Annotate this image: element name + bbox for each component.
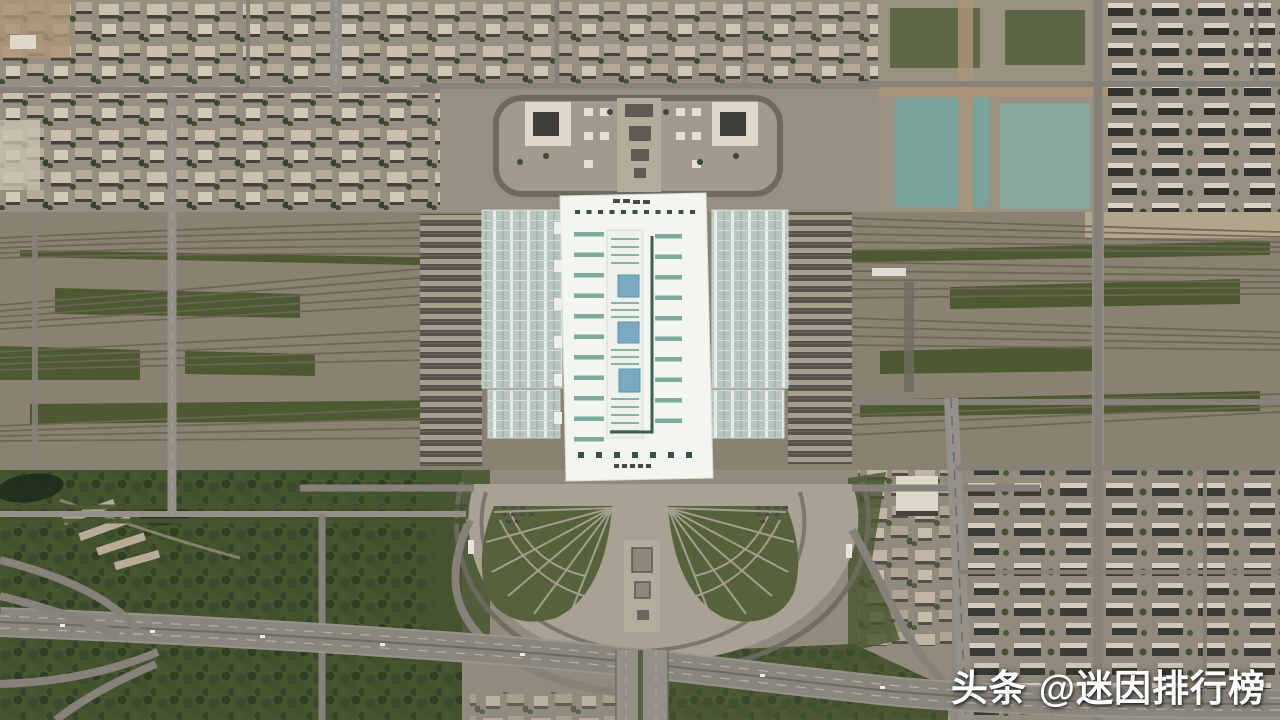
rail-overpass: [904, 282, 914, 392]
east-platform-canopy: [712, 210, 788, 388]
satellite-scene: [0, 0, 1280, 720]
east-canopy-annex: [710, 390, 784, 438]
watermark-brand: 头条: [951, 668, 1027, 709]
white-train: [872, 268, 906, 276]
roof-skylights: [618, 275, 640, 392]
west-platform-tracks: [420, 214, 482, 466]
west-canopy-annex: [488, 390, 560, 438]
west-platform-canopy: [482, 210, 562, 388]
station-boulevard: [616, 650, 668, 720]
east-platform-tracks: [788, 212, 852, 464]
north-station-plaza: [496, 98, 780, 194]
station-building: [482, 193, 788, 481]
watermark-handle: @迷因排行榜: [1039, 668, 1266, 709]
satellite-screenshot: 头条@迷因排行榜: [0, 0, 1280, 720]
watermark: 头条@迷因排行榜: [951, 658, 1266, 712]
